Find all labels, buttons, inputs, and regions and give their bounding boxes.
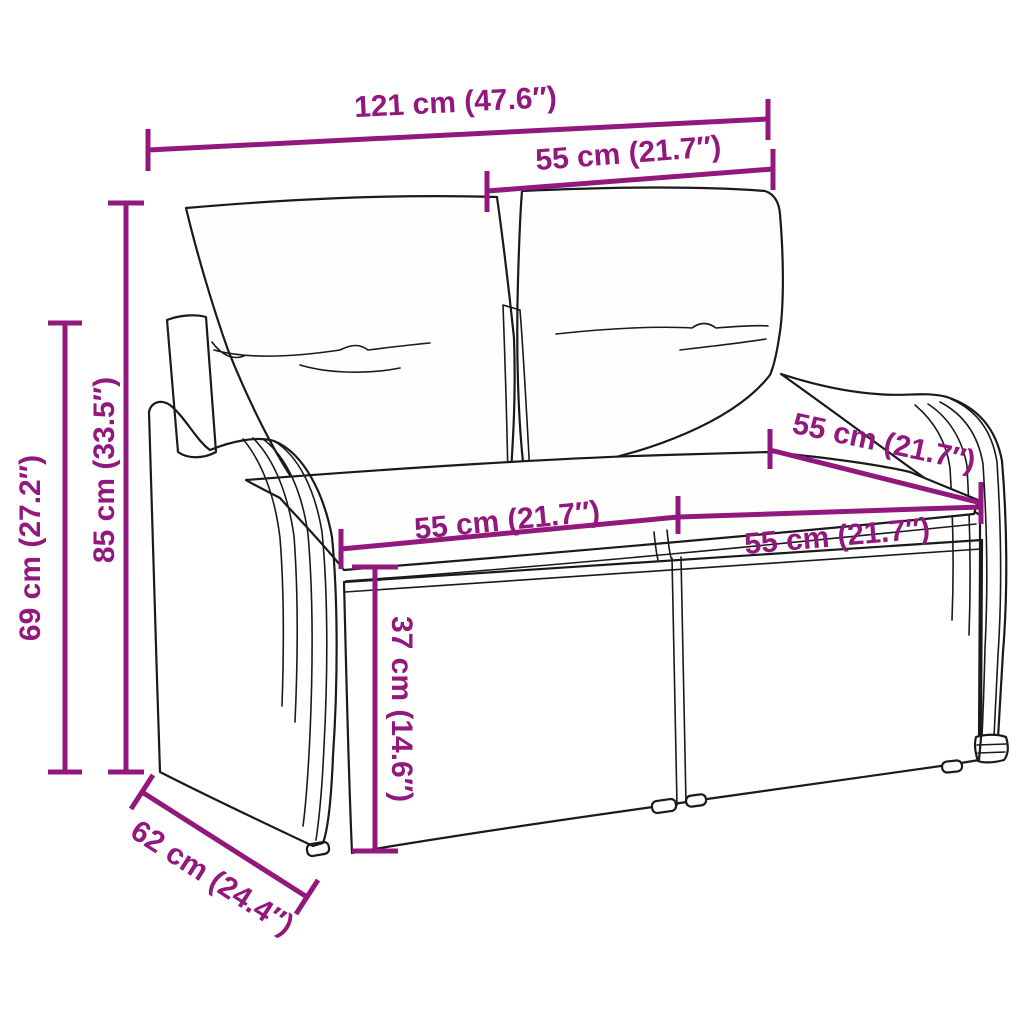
dim-label-back-width: 55 cm (21.7″) bbox=[534, 130, 722, 177]
dim-seat-height: 37 cm (14.6″) bbox=[352, 567, 418, 851]
foot bbox=[942, 760, 963, 773]
dim-label-overall-width: 121 cm (47.6″) bbox=[353, 81, 557, 124]
dim-overall-height: 85 cm (33.5″) bbox=[88, 203, 144, 772]
dim-label-arm-height: 69 cm (27.2″) bbox=[14, 455, 47, 641]
dim-arm-height: 69 cm (27.2″) bbox=[14, 323, 82, 772]
base-seam bbox=[672, 557, 686, 805]
foot bbox=[651, 798, 676, 813]
back-cushion-right bbox=[517, 188, 783, 471]
dim-base-depth: 62 cm (24.4″) bbox=[125, 775, 318, 942]
dim-label-overall-height: 85 cm (33.5″) bbox=[88, 377, 121, 563]
dim-line bbox=[48, 323, 82, 772]
diagram-canvas: 121 cm (47.6″) 55 cm (21.7″) 69 cm (27.2… bbox=[0, 0, 1024, 1024]
back-post-left bbox=[167, 315, 216, 457]
back-cushion-left bbox=[186, 196, 515, 489]
foot bbox=[685, 794, 706, 808]
dimension-diagram: 121 cm (47.6″) 55 cm (21.7″) 69 cm (27.2… bbox=[0, 0, 1024, 1024]
dim-label-seat-height: 37 cm (14.6″) bbox=[385, 616, 418, 802]
